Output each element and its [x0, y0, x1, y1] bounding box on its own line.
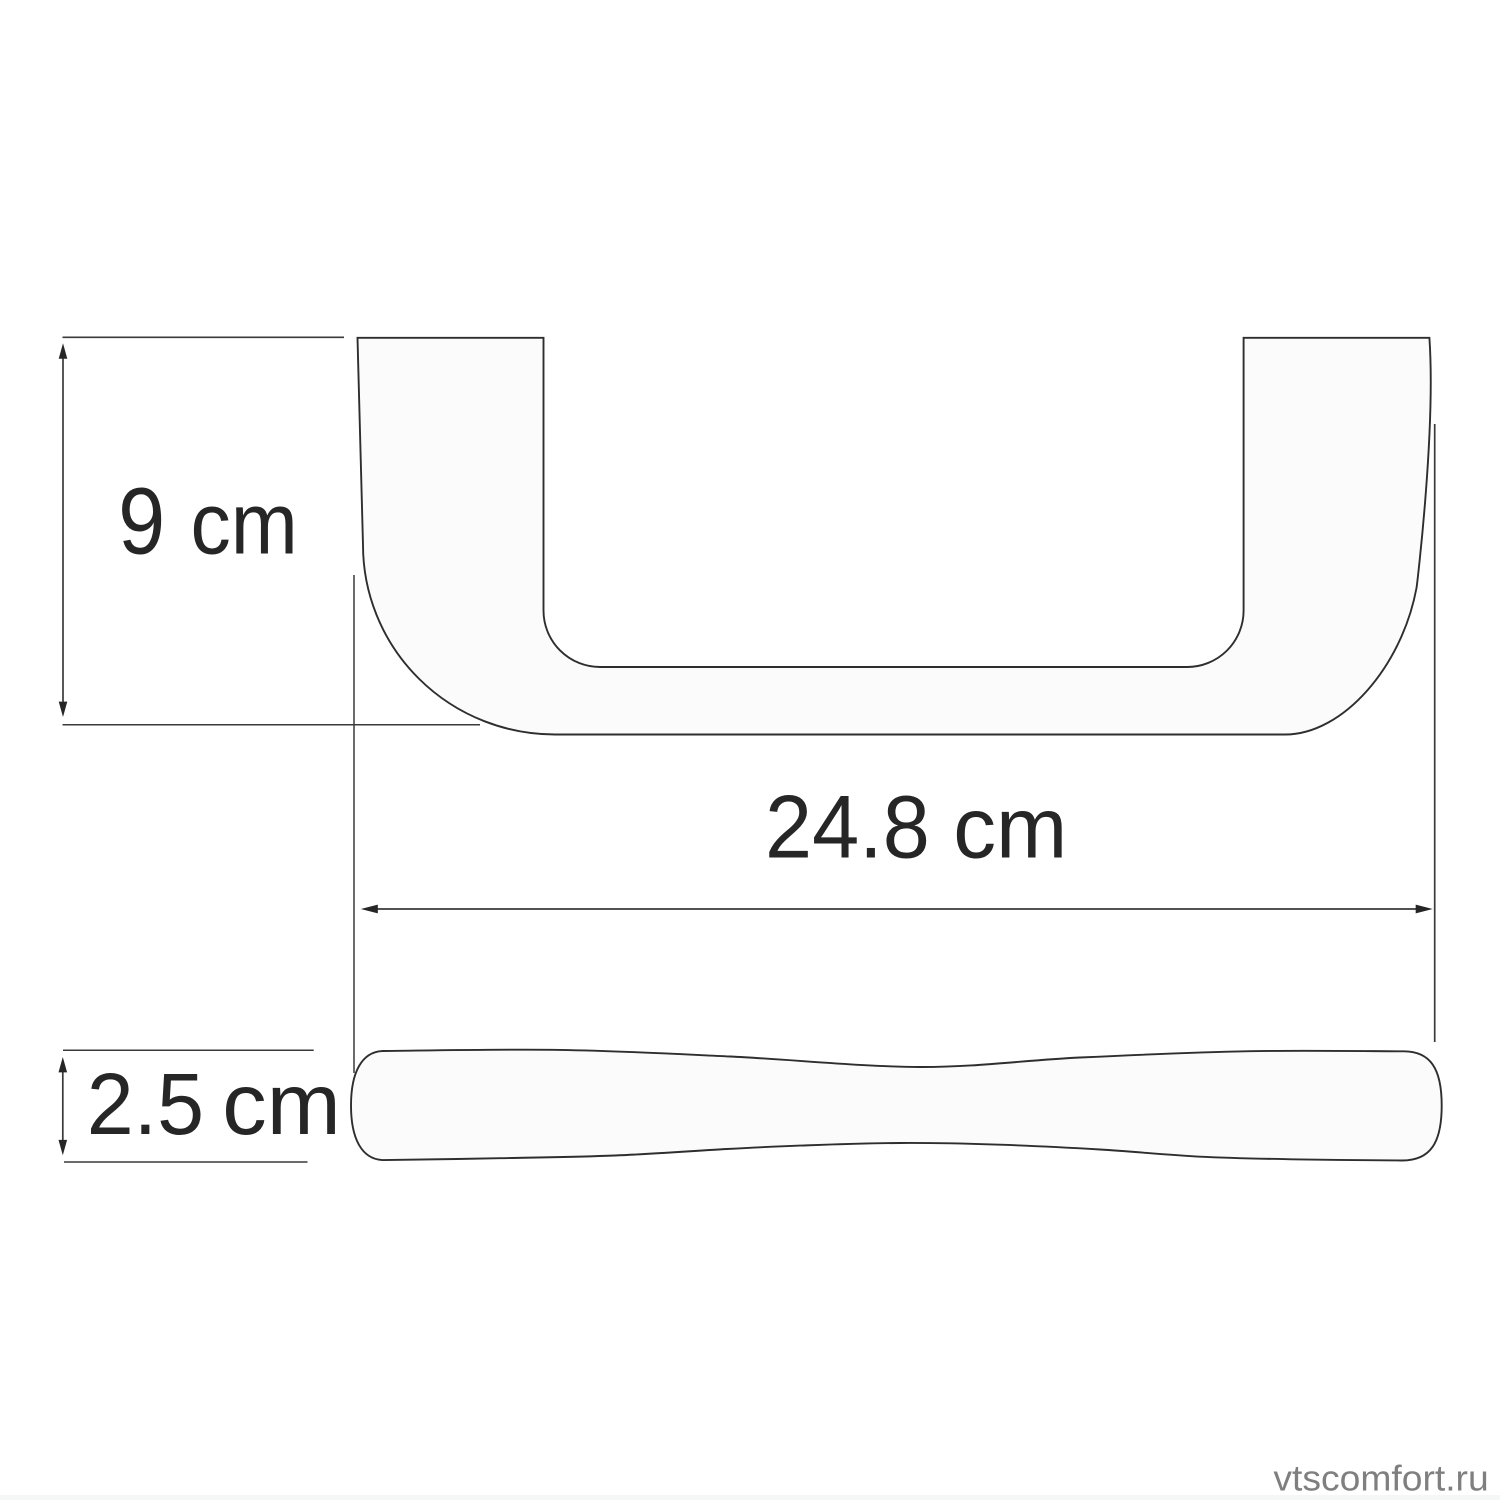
svg-text:2.5: 2.5 [87, 1056, 204, 1153]
svg-text:vtscomfort.ru: vtscomfort.ru [1273, 1457, 1488, 1498]
svg-text:9: 9 [118, 469, 165, 575]
svg-text:cm: cm [953, 780, 1067, 876]
svg-text:cm: cm [222, 1056, 340, 1153]
svg-text:24.8: 24.8 [765, 776, 930, 876]
svg-text:cm: cm [191, 475, 298, 573]
